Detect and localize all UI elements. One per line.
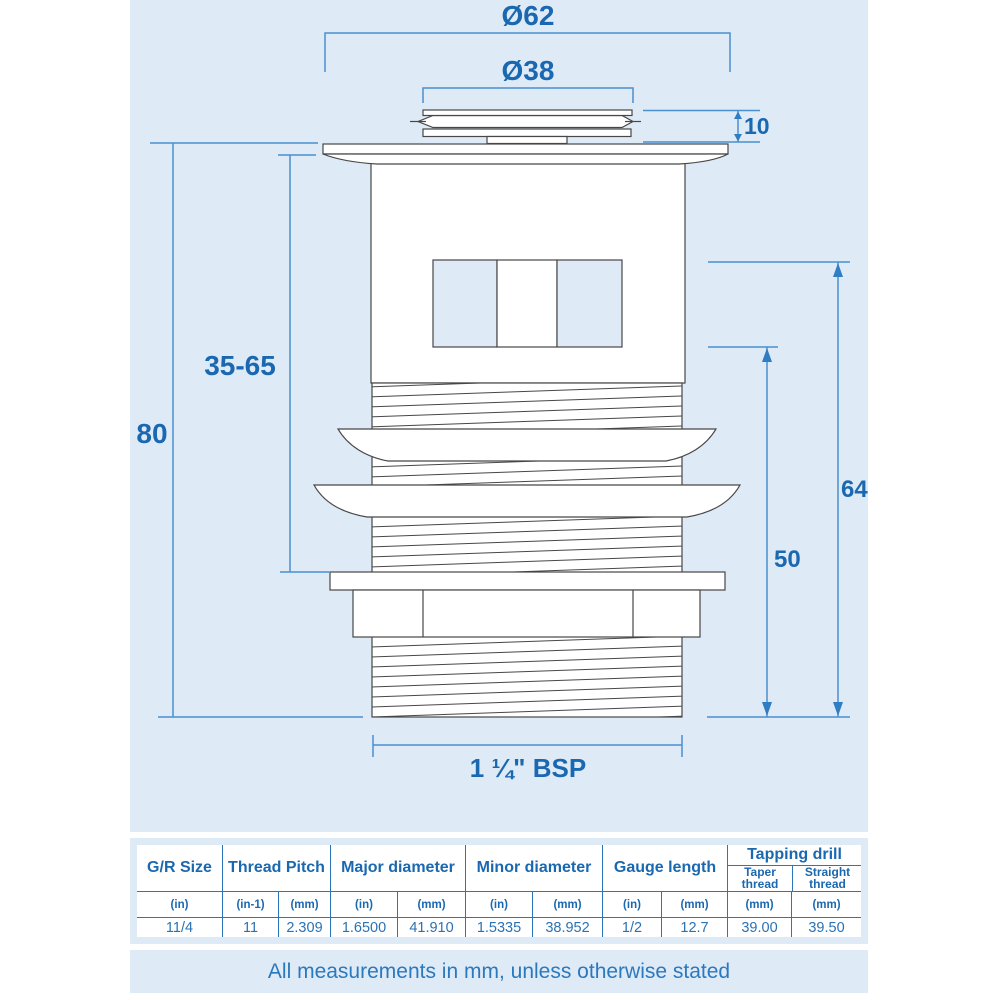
- arrow-down-10: [734, 134, 742, 142]
- col-header-tapping-drill-group: Tapping drill Taper thread Straight thre…: [727, 845, 861, 892]
- col-header-major-diameter: Major diameter: [330, 845, 465, 892]
- col-header-minor-diameter: Minor diameter: [465, 845, 602, 892]
- dim-label-50: 50: [774, 546, 801, 573]
- measurements-note: All measurements in mm, unless otherwise…: [268, 960, 730, 984]
- slot-crossbar: [497, 260, 557, 347]
- unit-cell: (in): [330, 892, 397, 918]
- dim-label-80: 80: [136, 418, 167, 449]
- spec-table: G/R Size Thread Pitch Major diameter Min…: [137, 845, 861, 937]
- seal-washer-upper: [338, 429, 716, 461]
- spec-table-inner: G/R Size Thread Pitch Major diameter Min…: [137, 845, 861, 937]
- unit-cell: (in): [465, 892, 532, 918]
- value-cell: 39.50: [791, 918, 861, 937]
- value-cell: 1/2: [602, 918, 661, 937]
- spec-table-card: G/R Size Thread Pitch Major diameter Min…: [130, 838, 868, 944]
- dim-label-38: Ø38: [502, 55, 555, 86]
- subheader-taper-thread: Taper thread: [728, 866, 792, 891]
- arrow-down-50: [762, 702, 772, 716]
- page: Ø62 Ø38 10 80 35-65 64: [0, 0, 1000, 1000]
- value-cell: 11: [222, 918, 278, 937]
- unit-cell: (in): [137, 892, 222, 918]
- dim-label-bsp: 1 ¼" BSP: [470, 753, 586, 783]
- flange-plate: [323, 144, 728, 154]
- value-cell: 1.5335: [465, 918, 532, 937]
- arrow-up-50: [762, 348, 772, 362]
- cap-dome: [418, 116, 633, 128]
- note-bar: All measurements in mm, unless otherwise…: [130, 950, 868, 993]
- dim-label-10: 10: [744, 113, 770, 139]
- unit-cell: (mm): [727, 892, 791, 918]
- unit-cell: (mm): [791, 892, 861, 918]
- arrow-down-64: [833, 702, 843, 716]
- unit-cell: (in-1): [222, 892, 278, 918]
- basin-waste-diagram: Ø62 Ø38 10 80 35-65 64: [130, 0, 868, 832]
- diagram-panel: Ø62 Ø38 10 80 35-65 64: [130, 0, 868, 832]
- value-cell: 1.6500: [330, 918, 397, 937]
- dim-label-35-65: 35-65: [204, 350, 276, 381]
- cap-top-plate: [423, 110, 632, 116]
- value-cell: 39.00: [727, 918, 791, 937]
- unit-cell: (mm): [278, 892, 330, 918]
- value-cell: 38.952: [532, 918, 602, 937]
- flat-washer: [330, 572, 725, 590]
- cap-lower-plate: [423, 129, 631, 137]
- value-cell: 12.7: [661, 918, 727, 937]
- backnut: [353, 590, 700, 637]
- unit-cell: (mm): [397, 892, 465, 918]
- col-header-tapping-drill: Tapping drill: [728, 845, 861, 866]
- subheader-straight-thread: Straight thread: [792, 866, 862, 891]
- tapping-subheaders: Taper thread Straight thread: [728, 866, 861, 891]
- dim-label-62: Ø62: [502, 0, 555, 31]
- unit-cell: (in): [602, 892, 661, 918]
- value-cell: 41.910: [397, 918, 465, 937]
- seal-washer-lower: [314, 485, 740, 517]
- col-header-thread-pitch: Thread Pitch: [222, 845, 330, 892]
- slot-hole-right: [557, 260, 622, 347]
- cap-neck: [487, 137, 567, 144]
- unit-cell: (mm): [532, 892, 602, 918]
- arrow-up-10: [734, 112, 742, 120]
- dim-line-38: [423, 88, 633, 103]
- arrow-up-64: [833, 263, 843, 277]
- flange-taper: [323, 154, 728, 164]
- col-header-gauge-length: Gauge length: [602, 845, 727, 892]
- unit-cell: (mm): [661, 892, 727, 918]
- value-cell: 2.309: [278, 918, 330, 937]
- slot-hole-left: [433, 260, 497, 347]
- col-header-gr-size: G/R Size: [137, 845, 222, 892]
- value-cell: 11/4: [137, 918, 222, 937]
- dim-label-64: 64: [841, 476, 868, 503]
